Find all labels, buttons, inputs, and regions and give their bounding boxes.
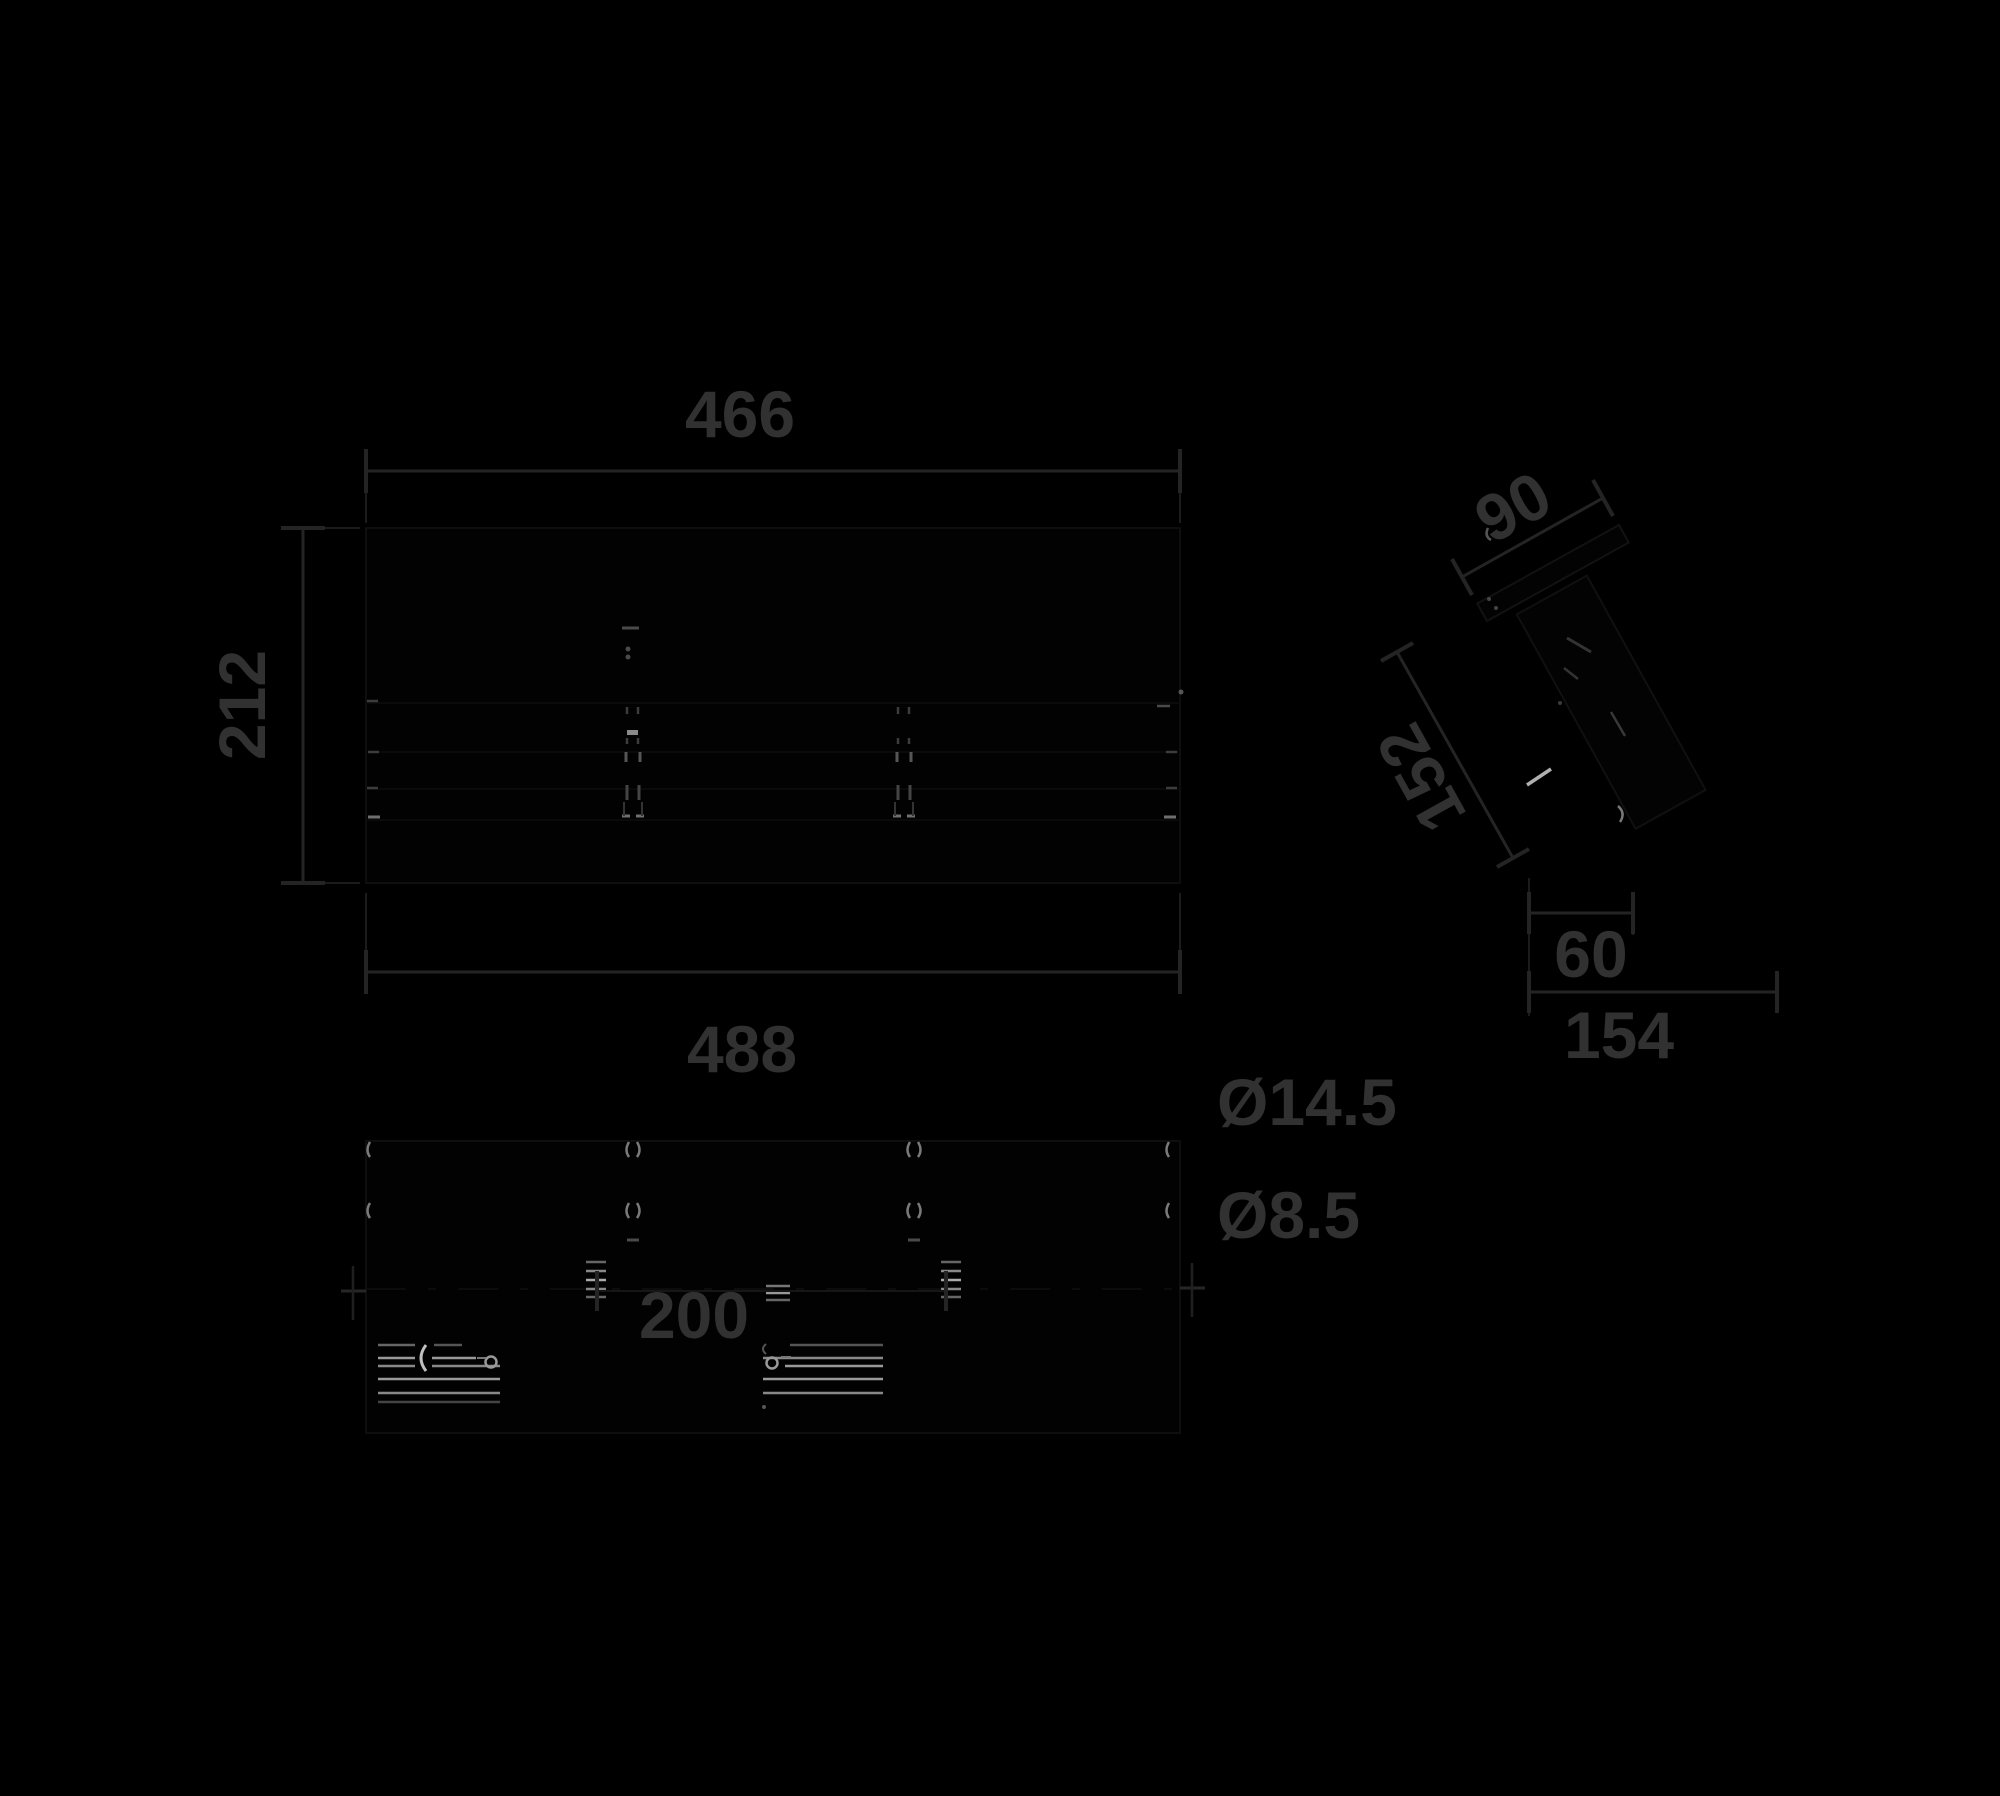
dim-154-label: 154: [1564, 998, 1674, 1072]
hole-diameter-labels: Ø14.5 Ø8.5: [1217, 1065, 1397, 1252]
centerline-end-left: [341, 1266, 366, 1320]
front-view: [366, 528, 1184, 883]
side-angled-view: [1477, 525, 1705, 829]
dim-arm-length: 152: [1362, 643, 1529, 867]
side-fixture-body: [1517, 576, 1706, 829]
dim-200-label: 200: [639, 1278, 749, 1352]
dim-90-tick-right: [1593, 480, 1613, 516]
dim-front-height: 212: [205, 528, 360, 883]
side-bright-edge: [1527, 769, 1551, 785]
dim-wall-offset: 60: [1529, 878, 1633, 1016]
dim-90-label: 90: [1463, 457, 1563, 557]
dimension-drawing: 466 212 488 Ø14.5 Ø8.5: [0, 0, 2000, 1796]
centerline-end-right: [1180, 1263, 1205, 1317]
drawing-canvas: 466 212 488 Ø14.5 Ø8.5: [0, 0, 2000, 1796]
hole-large-label: Ø14.5: [1217, 1065, 1397, 1139]
dim-152-label: 152: [1362, 712, 1480, 844]
dim-466-label: 466: [685, 377, 795, 451]
front-body-outline: [366, 528, 1180, 883]
hole-small-label: Ø8.5: [1217, 1178, 1360, 1252]
dim-90-tick-left: [1452, 559, 1472, 595]
dim-212-label: 212: [205, 650, 279, 760]
dim-152-tick-top: [1381, 643, 1413, 661]
dim-90-label-group: 90: [1463, 457, 1563, 557]
bottom-view: [341, 1141, 1205, 1433]
dim-152-label-group: 152: [1362, 712, 1480, 844]
dim-60-label: 60: [1554, 917, 1627, 991]
dim-front-width: 466: [366, 377, 1180, 523]
dim-overall-width: 488: [366, 893, 1180, 1086]
dim-152-tick-bottom: [1497, 849, 1529, 867]
dim-212-label-group: 212: [205, 650, 279, 760]
dim-488-label: 488: [687, 1012, 797, 1086]
